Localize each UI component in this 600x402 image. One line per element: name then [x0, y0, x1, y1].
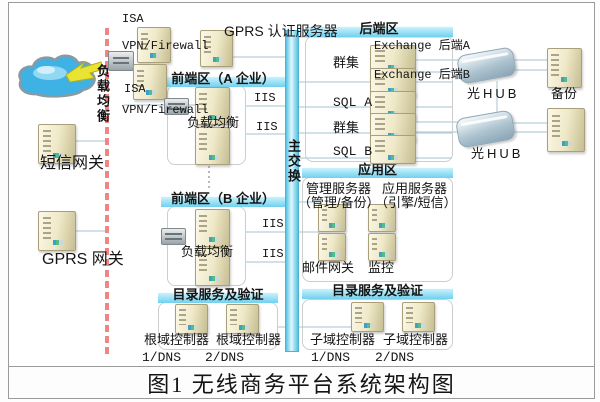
- vpn-firewall-top-label: VPN/Firewall: [122, 39, 208, 53]
- iis-label-b2: IIS: [262, 247, 284, 261]
- zone-frontend-b-header: 前端区（B 企业）: [161, 191, 285, 207]
- exchange-backend-a-label: Exchange 后端A: [374, 39, 470, 53]
- sql-b-label: SQL B: [333, 145, 372, 159]
- internet-cloud-icon: [12, 48, 96, 107]
- sub-dc-label-1: 子域控制器: [310, 333, 375, 347]
- zone-dir-right-header: 目录服务及验证: [302, 283, 453, 299]
- mail-gateway-label: 邮件网关: [302, 261, 354, 275]
- dns-label-right-2: 2/DNS: [375, 351, 414, 365]
- server-icon-sub-dc-1: [351, 302, 384, 332]
- optical-hub-label-1: 光HUB: [467, 87, 519, 101]
- load-balance-label-a: 负载均衡: [187, 116, 239, 130]
- gprs-auth-server-label: GPRS 认证服务器: [224, 24, 338, 38]
- server-icon-backend-5: [370, 135, 416, 164]
- zone-app-header: 应用区: [302, 162, 453, 178]
- dns-label-left-1: 1/DNS: [142, 351, 181, 365]
- root-dc-label-2: 根域控制器: [216, 333, 281, 347]
- sms-gateway-label: 短信网关: [40, 157, 104, 171]
- sub-dc-label-2: 子域控制器: [383, 333, 448, 347]
- main-switch-label: 主交换: [286, 139, 300, 184]
- server-icon-gprs-gateway: [38, 211, 76, 251]
- monitor-label: 监控: [368, 261, 394, 275]
- main-switch-bar: [285, 30, 299, 352]
- load-balance-label-b: 负载均衡: [181, 245, 233, 259]
- server-icon-backup-1: [547, 48, 582, 88]
- gprs-gateway-label: GPRS 网关: [42, 253, 124, 267]
- app-server-label: 应用服务器: [382, 182, 447, 196]
- iis-label-a2: IIS: [256, 120, 278, 134]
- server-icon-root-dc-2: [226, 304, 259, 334]
- optical-hub-label-2: 光HUB: [471, 147, 523, 161]
- cluster-label-2: 群集: [333, 121, 359, 135]
- load-balancer-icon: [108, 51, 134, 71]
- isa-bottom-label: ISA: [124, 82, 146, 96]
- mgmt-server-label: 管理服务器: [306, 182, 371, 196]
- isa-top-label: ISA: [122, 12, 144, 26]
- server-icon-mgmt-2: [318, 233, 346, 261]
- backup-label: 备份: [551, 87, 577, 101]
- server-icon-a-iis-2: [195, 127, 230, 165]
- exchange-backend-b-label: Exchange 后端B: [374, 68, 470, 82]
- zone-frontend-a-header: 前端区（A 企业）: [161, 71, 285, 87]
- sql-a-label: SQL A: [333, 96, 372, 110]
- iis-label-a1: IIS: [254, 91, 276, 105]
- server-icon-app-2: [368, 233, 396, 261]
- app-server-sublabel: （引擎/短信）: [375, 196, 457, 210]
- dns-label-left-2: 2/DNS: [205, 351, 244, 365]
- dns-label-right-1: 1/DNS: [311, 351, 350, 365]
- server-icon-backup-2: [547, 108, 585, 152]
- diagram-canvas: 前端区（A 企业） 前端区（B 企业） 后端区 应用区 目录服务及验证 目录服务…: [0, 0, 600, 402]
- load-balance-vertical-label: 负载均衡: [95, 64, 109, 124]
- load-balancer-icon-b: [161, 228, 186, 245]
- iis-label-b1: IIS: [262, 217, 284, 231]
- figure-caption: 图1 无线商务平台系统架构图: [8, 366, 595, 399]
- mgmt-server-sublabel: （管理/备份）: [298, 196, 380, 210]
- root-dc-label-1: 根域控制器: [144, 333, 209, 347]
- server-icon-b-iis-1: [195, 209, 230, 247]
- server-icon-sub-dc-2: [402, 302, 435, 332]
- zone-dir-left-header: 目录服务及验证: [158, 287, 278, 303]
- cluster-label-1: 群集: [333, 56, 359, 70]
- server-icon-root-dc-1: [175, 304, 208, 334]
